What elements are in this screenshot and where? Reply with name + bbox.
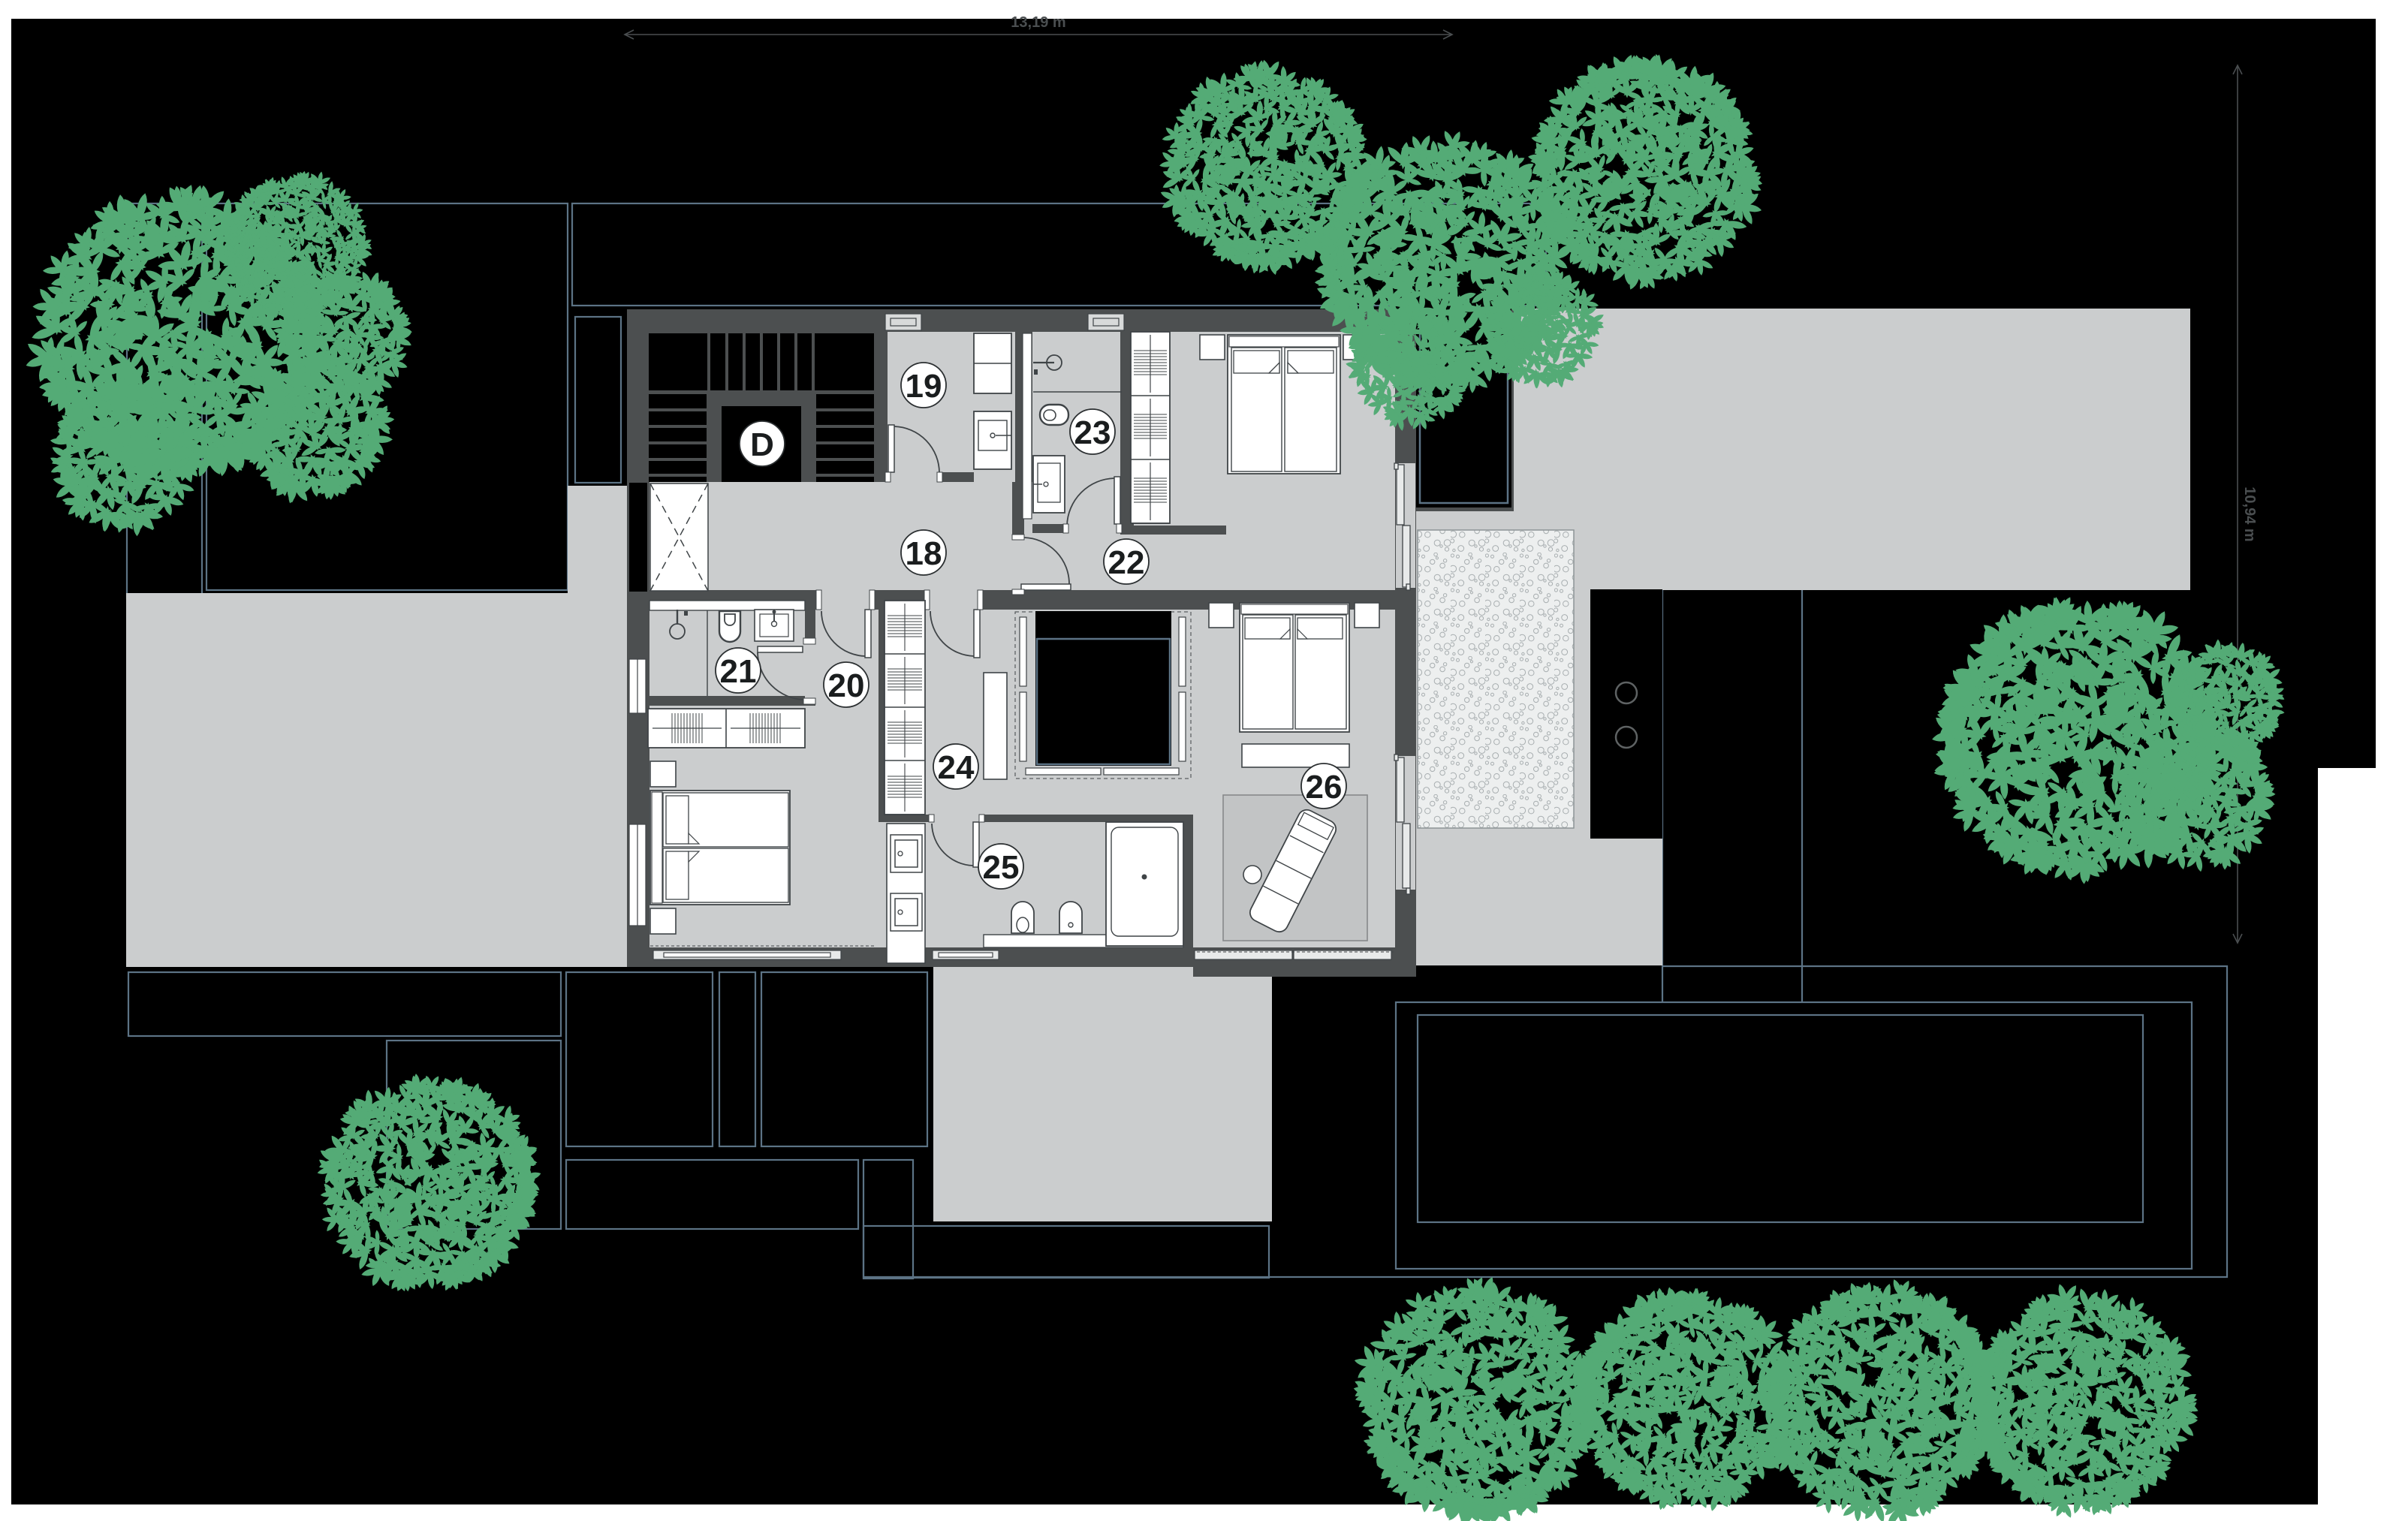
svg-text:20: 20	[828, 667, 865, 704]
svg-text:D: D	[750, 426, 774, 463]
svg-text:19: 19	[906, 368, 942, 405]
svg-text:23: 23	[1074, 414, 1111, 451]
svg-text:21: 21	[720, 653, 757, 690]
svg-text:18: 18	[906, 535, 942, 572]
svg-text:10,94 m: 10,94 m	[2241, 486, 2258, 541]
svg-text:13,19 m: 13,19 m	[1011, 14, 1065, 31]
svg-text:25: 25	[983, 849, 1020, 886]
svg-text:22: 22	[1108, 544, 1145, 581]
svg-text:24: 24	[938, 749, 975, 786]
svg-text:26: 26	[1306, 769, 1343, 806]
